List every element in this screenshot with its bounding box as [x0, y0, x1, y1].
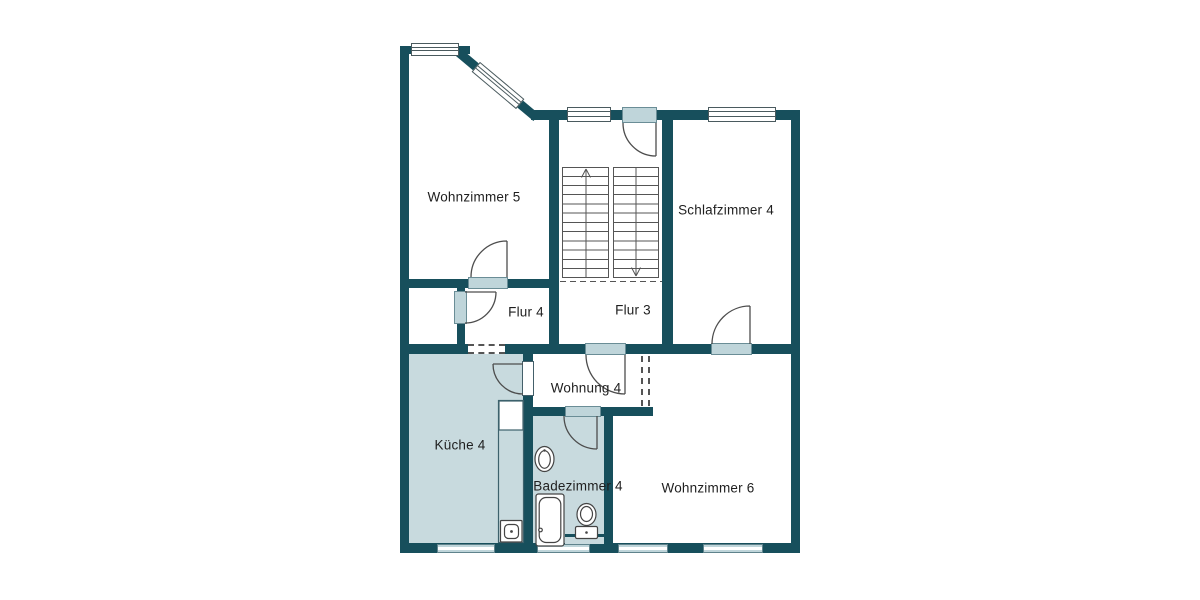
room-label-badezimmer-4: Badezimmer 4: [533, 479, 622, 494]
room-label-flur-4: Flur 4: [508, 305, 544, 320]
door-arc-wohnzimmer5: [471, 241, 507, 277]
room-label-kueche-4: Küche 4: [435, 438, 486, 453]
room-label-wohnzimmer-6: Wohnzimmer 6: [662, 481, 755, 496]
room-label-wohnzimmer-5: Wohnzimmer 5: [428, 190, 521, 205]
floor-plan-canvas: Wohnzimmer 5 Schlafzimmer 4 Flur 4 Flur …: [0, 0, 1200, 600]
bath-sink-icon: [535, 447, 554, 472]
door-arc-kueche: [493, 364, 523, 394]
toilet-icon: [576, 504, 598, 539]
room-label-schlafzimmer-4: Schlafzimmer 4: [678, 203, 774, 218]
stairs-icon: [560, 168, 662, 282]
door-arc-badezimmer: [564, 416, 597, 449]
door-arc-flur3: [623, 123, 656, 156]
door-arc-closet: [465, 292, 496, 323]
kitchen-sink-icon: [501, 521, 523, 543]
bathtub-icon: [536, 494, 564, 546]
door-arc-schlafzimmer: [712, 306, 750, 344]
room-label-flur-3: Flur 3: [615, 303, 651, 318]
symbols-overlay: [0, 0, 1200, 600]
room-label-wohnung-4: Wohnung 4: [551, 381, 622, 396]
